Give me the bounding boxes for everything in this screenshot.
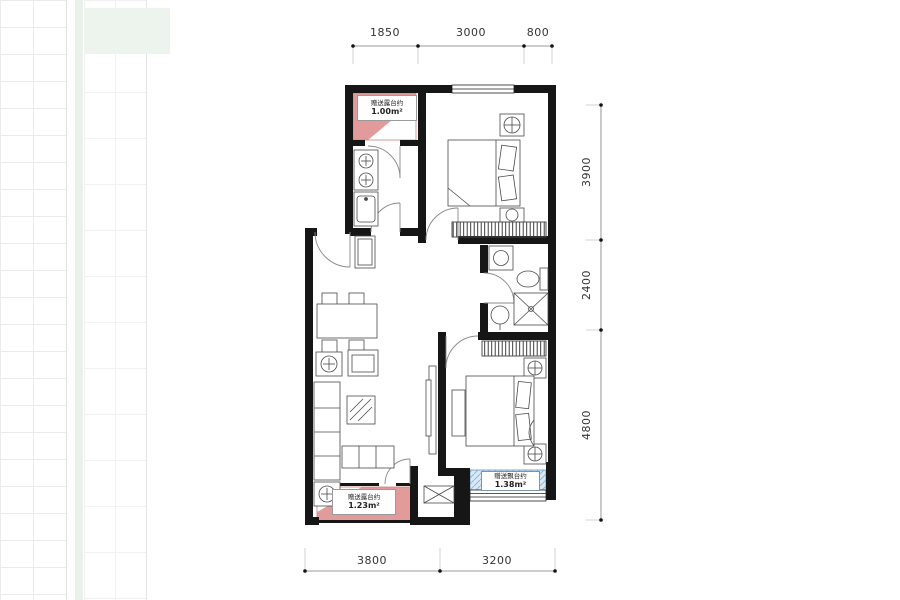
bathroom-sink-icon <box>491 306 509 330</box>
tv-cabinet-icon <box>426 366 436 454</box>
balcony-top-label: 赠送露台约 1.00m² <box>357 95 417 121</box>
bay-window-value: 1.38m² <box>495 480 527 489</box>
bed-master-icon <box>466 376 534 446</box>
balcony-top-value: 1.00m² <box>371 107 403 116</box>
armchair-icon <box>348 350 378 376</box>
dim-bottom-3800: 3800 <box>342 554 402 568</box>
floorplan-drawing <box>0 0 900 600</box>
balcony-bottom-value: 1.23m² <box>348 501 380 510</box>
wardrobe-master <box>482 341 546 356</box>
balcony-bottom-label: 赠送露台约 1.23m² <box>332 489 396 515</box>
bay-window-name: 赠送飘台约 <box>494 473 527 480</box>
nightstand-lamp-icon-2 <box>500 208 524 222</box>
kitchen-sink-icon <box>354 192 378 226</box>
shoe-cabinet-icon <box>424 486 454 503</box>
bathroom-door <box>484 273 514 303</box>
dim-top-1850: 1850 <box>355 26 415 40</box>
sofa-main-icon <box>342 446 394 468</box>
dim-bottom-3200: 3200 <box>467 554 527 568</box>
bay-window-label: 赠送飘台约 1.38m² <box>481 471 540 491</box>
entry-door <box>315 232 350 267</box>
dim-top-3000: 3000 <box>441 26 501 40</box>
balcony-top-name: 赠送露台约 <box>371 100 404 107</box>
dim-right-3900: 3900 <box>580 142 594 202</box>
bench-icon <box>452 390 465 436</box>
dim-top-800: 800 <box>508 26 568 40</box>
hall-cabinet-icon <box>355 236 375 268</box>
dim-right-2400: 2400 <box>580 255 594 315</box>
plant-table-icon-1 <box>316 352 342 376</box>
coffee-table-icon <box>347 396 375 424</box>
washing-machine-icon <box>489 246 513 270</box>
bay-window <box>470 490 546 501</box>
balcony-bottom-name: 赠送露台约 <box>348 494 381 501</box>
master-nightstand-1 <box>524 358 546 378</box>
stove-icon <box>354 150 378 190</box>
master-door <box>446 336 478 368</box>
master-nightstand-2 <box>524 444 546 464</box>
sofa-side-icon <box>314 382 340 480</box>
toilet-icon <box>517 268 548 290</box>
dim-right-4800: 4800 <box>580 395 594 455</box>
shower-icon <box>514 293 548 325</box>
bedroom-window <box>452 85 514 93</box>
nightstand-lamp-icon <box>500 114 524 136</box>
floorplan-canvas: 1850 3000 800 3900 2400 4800 3800 3200 赠… <box>0 0 900 600</box>
wardrobe-secondary <box>452 222 546 237</box>
dining-table-icon <box>317 293 377 353</box>
bed-secondary-icon <box>448 140 520 206</box>
